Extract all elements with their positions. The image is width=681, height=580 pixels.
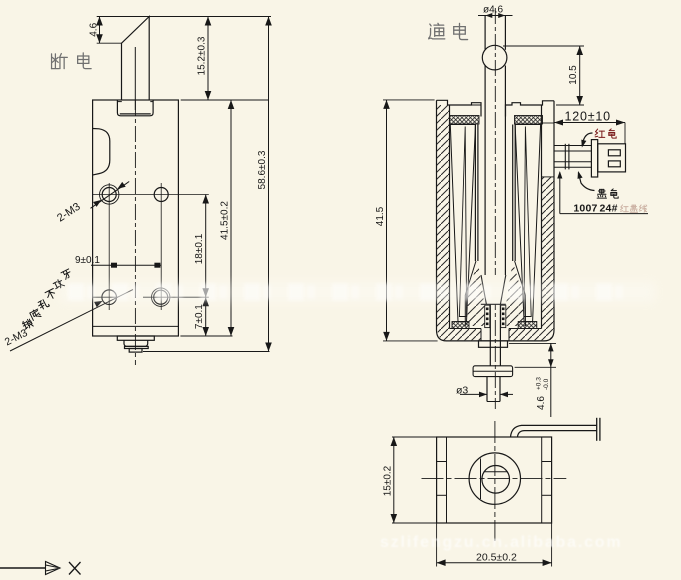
svg-text:4.6: 4.6 bbox=[536, 396, 547, 410]
svg-text:-0.0: -0.0 bbox=[543, 378, 550, 390]
svg-text:+0.3: +0.3 bbox=[536, 377, 543, 390]
svg-text:7±0.1: 7±0.1 bbox=[194, 304, 205, 329]
svg-text:41.5: 41.5 bbox=[375, 206, 386, 226]
svg-text:15.2±0.3: 15.2±0.3 bbox=[197, 36, 208, 75]
svg-text:20.5±0.2: 20.5±0.2 bbox=[476, 551, 517, 563]
svg-text:18±0.1: 18±0.1 bbox=[194, 233, 205, 264]
svg-text:58.6±0.3: 58.6±0.3 bbox=[257, 150, 268, 189]
svg-text:120±10: 120±10 bbox=[565, 110, 611, 124]
svg-text:10.5: 10.5 bbox=[568, 65, 579, 85]
svg-text:4.6: 4.6 bbox=[89, 22, 100, 36]
svg-text:szlifengzu.cn.alibaba.com: szlifengzu.cn.alibaba.com bbox=[380, 534, 622, 551]
svg-text:ø4.6: ø4.6 bbox=[483, 5, 503, 16]
svg-text:9±0.1: 9±0.1 bbox=[75, 255, 100, 266]
svg-text:24#: 24# bbox=[600, 203, 618, 215]
svg-text:15±0.2: 15±0.2 bbox=[382, 465, 393, 496]
svg-text:1007: 1007 bbox=[573, 203, 597, 215]
svg-text:41.5±0.2: 41.5±0.2 bbox=[220, 201, 231, 240]
